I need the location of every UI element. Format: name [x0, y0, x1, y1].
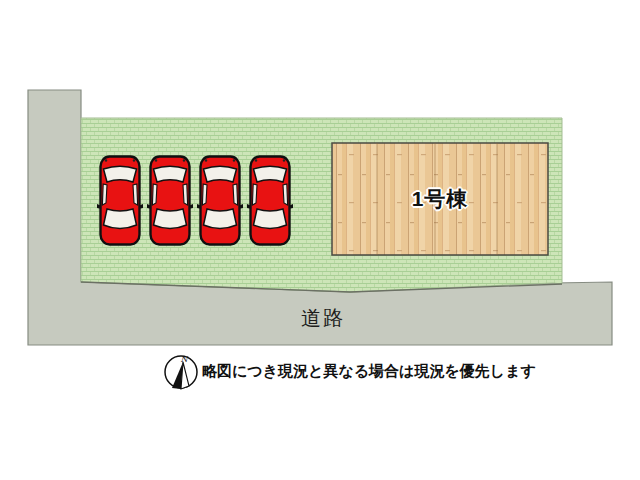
- disclaimer-text: 略図につき現況と異なる場合は現況を優先します: [202, 362, 536, 381]
- car-3: [197, 157, 243, 245]
- car-2: [147, 157, 193, 245]
- car-1: [97, 157, 143, 245]
- site-plan: N 1号棟 道路 略図につき現況と異なる場合は現況を優先します: [0, 0, 640, 480]
- road-label: 道路: [273, 305, 373, 332]
- car-4: [247, 157, 293, 245]
- building-label: 1号棟: [332, 143, 548, 255]
- north-indicator: N: [165, 355, 197, 389]
